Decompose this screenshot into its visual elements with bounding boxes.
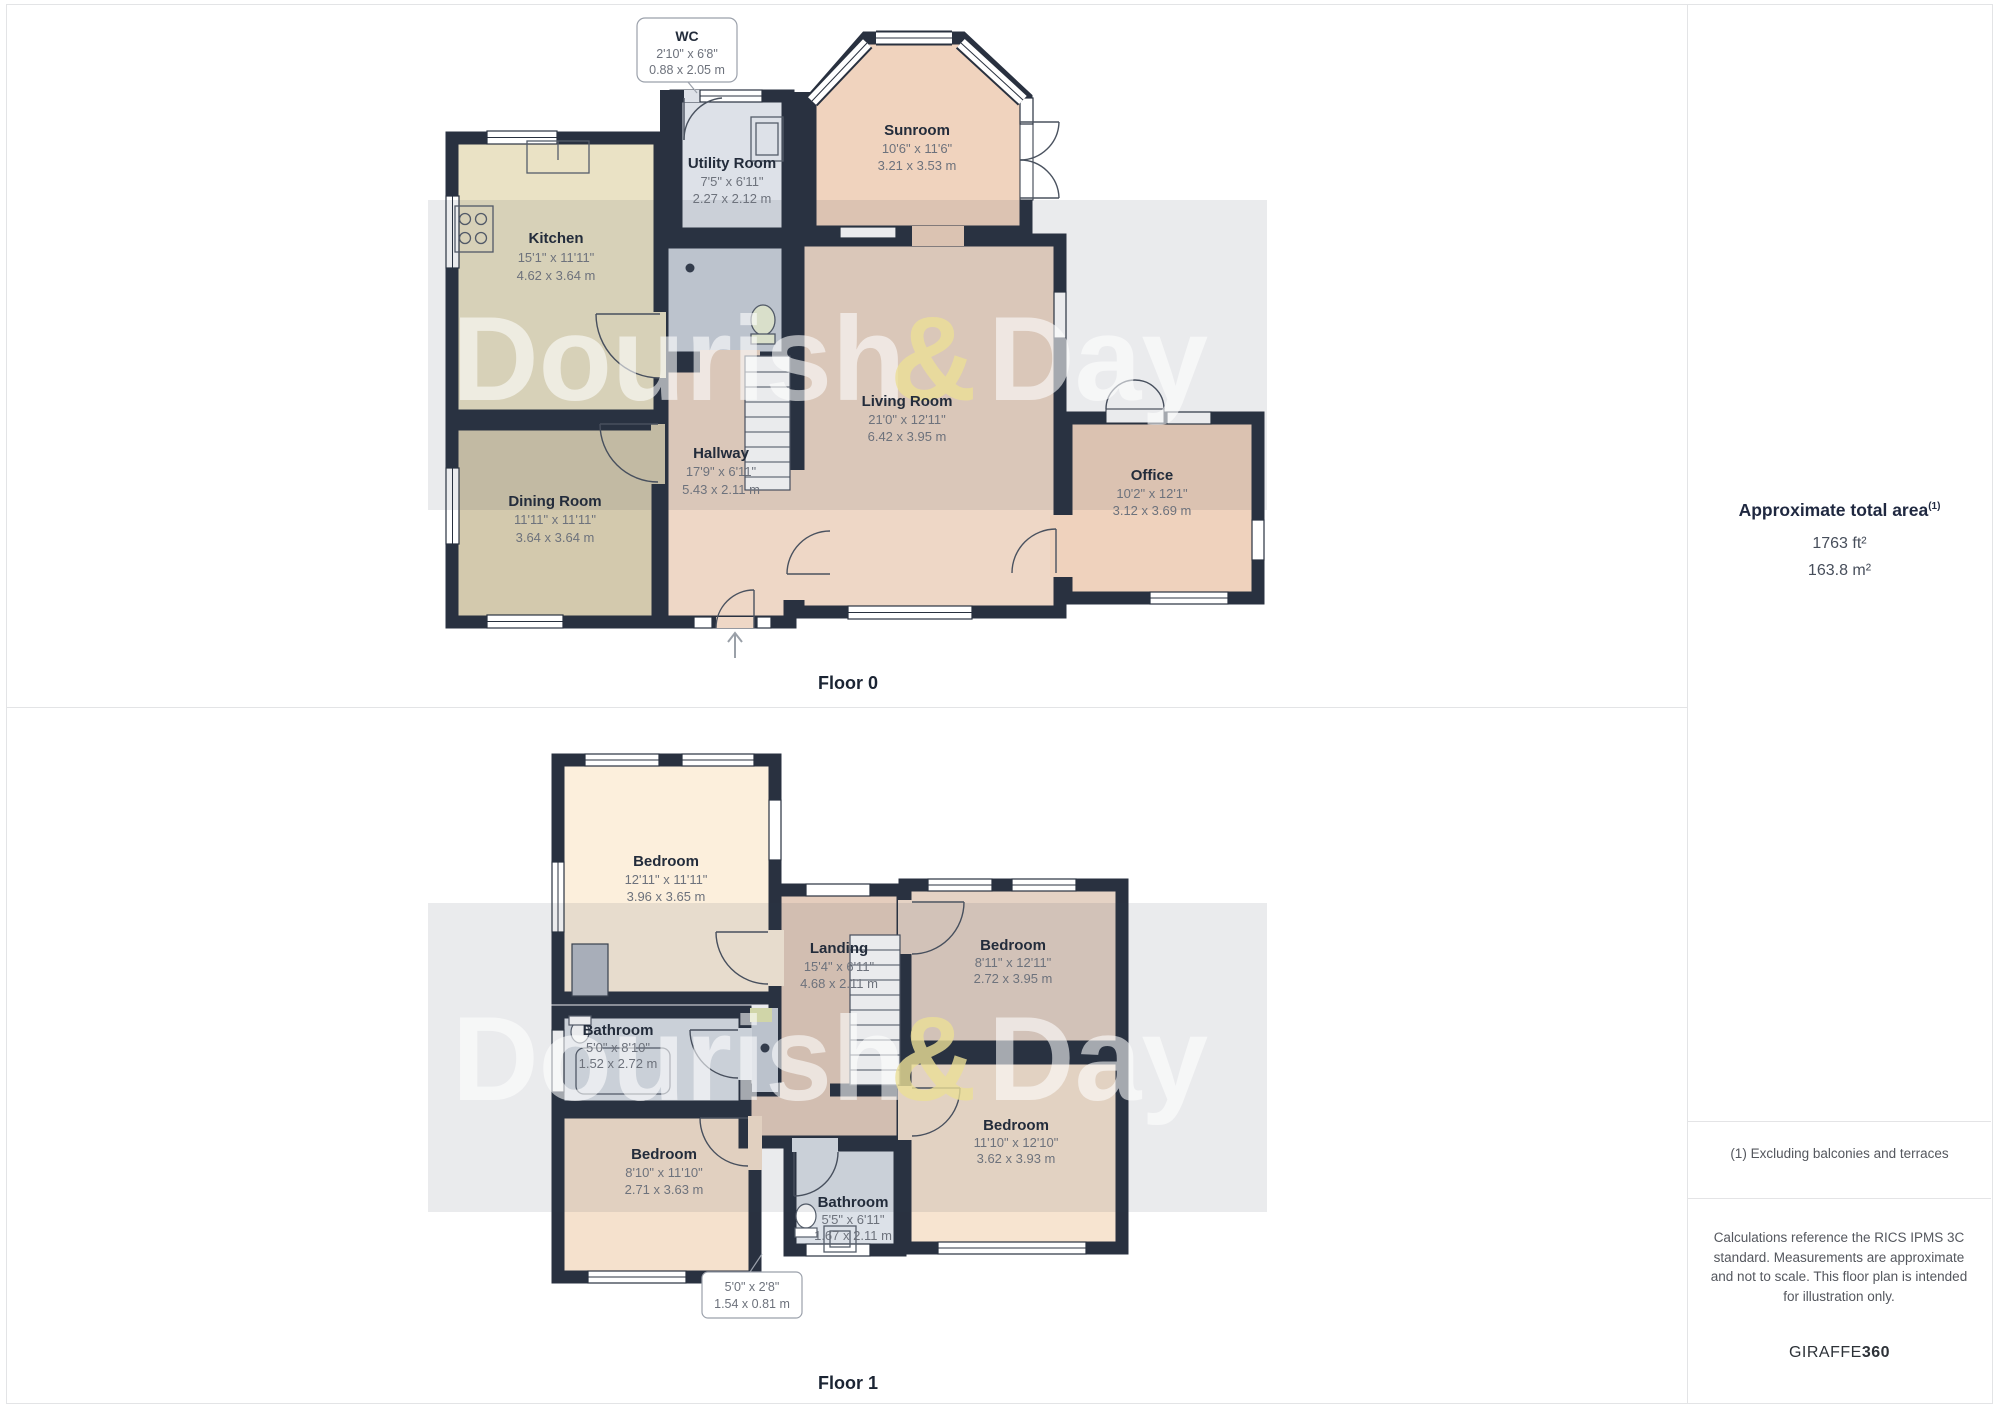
room-label-hallway: Hallway <box>693 445 750 462</box>
floor1-label: Floor 1 <box>818 1373 878 1393</box>
callout-dim-m: 1.54 x 0.81 m <box>714 1297 790 1311</box>
callout-dim-ft: 5'0" x 2'8" <box>725 1280 780 1294</box>
disclaimer-text: Calculations reference the RICS IPMS 3C … <box>1706 1228 1972 1306</box>
watermark-ampersand: & <box>890 992 977 1126</box>
room-dim-m: 4.68 x 2.11 m <box>800 976 878 991</box>
room-label-wc: WC <box>675 28 698 44</box>
room-dim-ft: 5'5" x 6'11" <box>821 1212 884 1227</box>
footnote-text: (1) Excluding balconies and terraces <box>1688 1146 1991 1161</box>
watermark-text-left: Dourish <box>452 292 905 426</box>
total-area-sqm: 163.8 m² <box>1688 557 1991 584</box>
room-label-bedroom: Bedroom <box>983 1117 1049 1134</box>
room-label-bedroom: Bedroom <box>631 1146 697 1163</box>
room-dim-ft: 7'5" x 6'11" <box>700 174 763 189</box>
room-dim-m: 4.62 x 3.64 m <box>517 268 596 283</box>
room-dim-m: 1.67 x 2.11 m <box>814 1228 892 1243</box>
room-dim-m: 6.42 x 3.95 m <box>868 429 947 444</box>
room-label-sunroom: Sunroom <box>884 122 950 139</box>
watermark-text-left: Dourish <box>452 992 905 1126</box>
footnote-marker: (1) <box>1928 501 1940 512</box>
room-dim-ft: 21'0" x 12'11" <box>868 412 946 427</box>
room-dim-ft: 12'11" x 11'11" <box>625 872 708 887</box>
brand-name: GIRAFFE <box>1789 1344 1862 1361</box>
room-dim-ft: 8'10" x 11'10" <box>625 1165 703 1180</box>
room-label-kitchen: Kitchen <box>528 230 583 247</box>
room-dim-m: 3.21 x 3.53 m <box>878 158 957 173</box>
total-area-sqft: 1763 ft² <box>1688 530 1991 557</box>
room-label-office: Office <box>1131 467 1174 484</box>
room-dim-m: 2.71 x 3.63 m <box>625 1182 704 1197</box>
room-dim-ft: 5'0" x 8'10" <box>586 1040 650 1055</box>
sidebar-divider <box>1687 4 1688 1403</box>
sidebar-section-divider <box>1688 1198 1991 1199</box>
room-label-bathroom: Bathroom <box>583 1022 654 1039</box>
watermark-text-right: Day <box>988 292 1208 426</box>
room-dim-m: 2.27 x 2.12 m <box>693 191 772 206</box>
room-dim-ft: 8'11" x 12'11" <box>975 955 1052 970</box>
room-dim-m: 1.52 x 2.72 m <box>579 1056 658 1071</box>
wc-callout: WC 2'10" x 6'8" 0.88 x 2.05 m <box>637 18 737 93</box>
sidebar-section-divider <box>1688 1121 1991 1122</box>
room-dim-ft: 11'11" x 11'11" <box>514 512 596 527</box>
room-dim-m: 3.96 x 3.65 m <box>627 889 706 904</box>
brand-suffix: 360 <box>1862 1344 1890 1361</box>
room-label-living: Living Room <box>862 393 953 410</box>
room-label-utility: Utility Room <box>688 155 776 172</box>
room-dim-m: 5.43 x 2.11 m <box>682 482 760 497</box>
entrance-arrow <box>728 633 742 658</box>
giraffe360-logo: GIRAFFE360 <box>1688 1344 1991 1362</box>
room-dim-m: 0.88 x 2.05 m <box>649 63 725 77</box>
room-dim-ft: 10'6" x 11'6" <box>882 141 953 156</box>
total-area-block: Approximate total area(1) 1763 ft² 163.8… <box>1688 500 1991 584</box>
room-dim-ft: 10'2" x 12'1" <box>1116 486 1188 501</box>
total-area-title: Approximate total area(1) <box>1688 500 1991 521</box>
room-dim-ft: 11'10" x 12'10" <box>974 1135 1059 1150</box>
room-label-landing: Landing <box>810 940 868 957</box>
room-dim-ft: 2'10" x 6'8" <box>656 47 718 61</box>
floorplan-page: Dourish & Day Kitchen 15'1" x 11'11" 4.6… <box>0 0 2000 1415</box>
room-dim-m: 2.72 x 3.95 m <box>974 971 1053 986</box>
watermark-text-right: Day <box>988 992 1208 1126</box>
floor0-plan: Dourish & Day Kitchen 15'1" x 11'11" 4.6… <box>7 5 1687 707</box>
room-dim-m: 3.62 x 3.93 m <box>977 1151 1056 1166</box>
room-label-dining: Dining Room <box>508 493 601 510</box>
floor0-label: Floor 0 <box>818 673 878 693</box>
room-label-bathroom: Bathroom <box>818 1194 889 1211</box>
room-label-bedroom: Bedroom <box>980 937 1046 954</box>
room-dim-ft: 15'1" x 11'11" <box>518 250 595 265</box>
room-dim-m: 3.64 x 3.64 m <box>516 530 595 545</box>
room-label-bedroom: Bedroom <box>633 853 699 870</box>
room-dim-ft: 15'4" x 6'11" <box>804 959 875 974</box>
floor1-plan: Dourish & Day Bedroom 12'11" x 11'11" 3.… <box>7 708 1687 1402</box>
room-dim-m: 3.12 x 3.69 m <box>1113 503 1192 518</box>
room-dim-ft: 17'9" x 6'11" <box>686 464 757 479</box>
